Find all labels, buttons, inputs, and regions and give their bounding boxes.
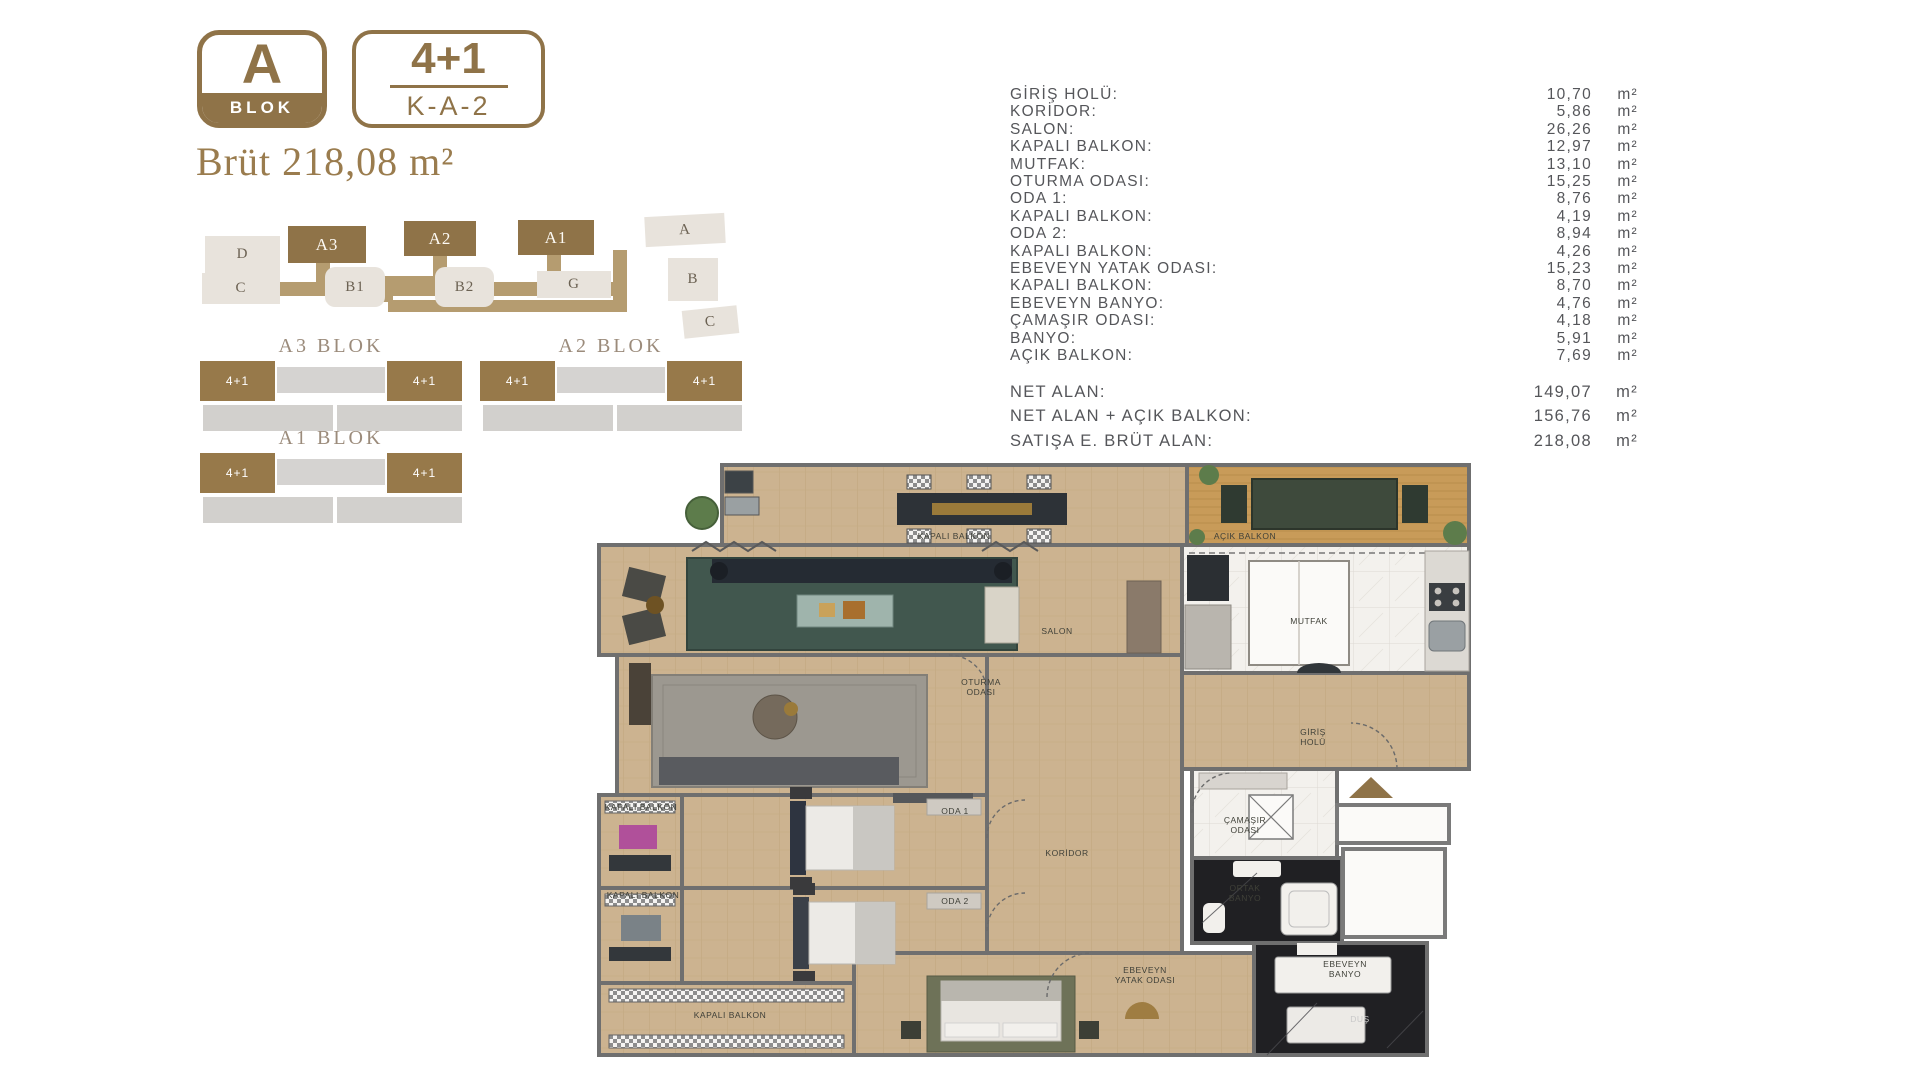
site-block-b: B [668,258,718,301]
room-area-value: 5,86 [1506,103,1592,120]
room-name: AÇIK BALKON: [1010,347,1506,364]
room-area-unit: m² [1592,330,1638,347]
area-row: ÇAMAŞIR ODASI: 4,18 m² [1010,312,1638,329]
site-block-a3: A3 [288,226,366,263]
brochure-page: A BLOK 4+1 K-A-2 Brüt 218,08 m² DCA3A2A1… [0,0,1920,1080]
room-name: MUTFAK: [1010,156,1506,173]
area-row: KAPALI BALKON: 8,70 m² [1010,277,1638,294]
core-bar [277,459,385,485]
lower-wing-right [337,497,462,523]
area-row: GİRİŞ HOLÜ: 10,70 m² [1010,86,1638,103]
area-row: EBEVEYN BANYO: 4,76 m² [1010,295,1638,312]
mini-block-plate: 4+1 4+1 [200,361,462,433]
site-block-c: C [202,273,280,304]
room-name: KAPALI BALKON: [1010,243,1506,260]
area-row: KAPALI BALKON: 4,19 m² [1010,208,1638,225]
site-block-a: A [644,213,725,247]
room-area-unit: m² [1592,103,1638,120]
mini-block-diagram: A2 BLOK 4+1 4+1 [480,335,742,433]
block-letter: A [202,35,322,93]
room-area-unit: m² [1592,190,1638,207]
site-block-g: G [537,271,611,298]
entrance-arrow-icon [1349,777,1393,798]
room-area-unit: m² [1592,429,1638,454]
room-area-unit: m² [1592,225,1638,242]
room-area-value: 8,94 [1506,225,1592,242]
floor-plan: KAPALI BALKONAÇIK BALKONSALONMUTFAKOTURM… [597,463,1477,1065]
block-badge: A BLOK [197,30,327,128]
unit-cell-right: 4+1 [387,453,462,493]
room-name: BANYO: [1010,330,1506,347]
room-name: OTURMA ODASI: [1010,173,1506,190]
room-area-unit: m² [1592,208,1638,225]
room-area-unit: m² [1592,277,1638,294]
area-row: MUTFAK: 13,10 m² [1010,156,1638,173]
room-area-value: 4,18 [1506,312,1592,329]
block-word: BLOK [202,93,322,123]
room-area-value: 13,10 [1506,156,1592,173]
room-area-unit: m² [1592,156,1638,173]
room-area-unit: m² [1592,121,1638,138]
room-name: ÇAMAŞIR ODASI: [1010,312,1506,329]
room-name: KAPALI BALKON: [1010,138,1506,155]
room-name: EBEVEYN YATAK ODASI: [1010,260,1506,277]
room-name: KAPALI BALKON: [1010,277,1506,294]
area-row: BANYO: 5,91 m² [1010,330,1638,347]
area-row: ODA 1: 8,76 m² [1010,190,1638,207]
area-row: AÇIK BALKON: 7,69 m² [1010,347,1638,364]
site-block-b1: B1 [325,267,385,307]
site-block-a2: A2 [404,221,476,256]
area-row: KAPALI BALKON: 4,26 m² [1010,243,1638,260]
room-area-value: 15,23 [1506,260,1592,277]
mini-block-diagram: A1 BLOK 4+1 4+1 [200,427,462,525]
area-table: GİRİŞ HOLÜ: 10,70 m² KORİDOR: 5,86 m² SA… [1010,86,1638,453]
area-row: ODA 2: 8,94 m² [1010,225,1638,242]
unit-code: K-A-2 [406,91,490,122]
room-area-unit: m² [1592,295,1638,312]
lower-wing-left [203,497,333,523]
area-row: KAPALI BALKON: 12,97 m² [1010,138,1638,155]
room-area-unit: m² [1592,312,1638,329]
mini-block-plate: 4+1 4+1 [480,361,742,433]
room-area-value: 26,26 [1506,121,1592,138]
room-area-unit: m² [1592,380,1638,405]
room-area-unit: m² [1592,404,1638,429]
unit-cell-right: 4+1 [387,361,462,401]
site-block-c: C [682,305,740,339]
room-area-value: 5,91 [1506,330,1592,347]
room-area-unit: m² [1592,347,1638,364]
room-name: SALON: [1010,121,1506,138]
room-area-value: 218,08 [1506,429,1592,454]
area-row: SATIŞA E. BRÜT ALAN: 218,08 m² [1010,429,1638,454]
room-area-value: 149,07 [1506,380,1592,405]
unit-cell-left: 4+1 [200,361,275,401]
badge-divider [390,85,508,88]
mini-block-diagram: A3 BLOK 4+1 4+1 [200,335,462,433]
unit-cell-right: 4+1 [667,361,742,401]
area-row: NET ALAN + AÇIK BALKON: 156,76 m² [1010,404,1638,429]
unit-type: 4+1 [411,37,486,81]
room-name: GİRİŞ HOLÜ: [1010,86,1506,103]
room-area-value: 8,70 [1506,277,1592,294]
kitchen-fixtures [1185,551,1469,673]
floor-plan-drawing [597,463,1477,1065]
sitting-room-furniture [629,663,973,803]
room-area-unit: m² [1592,173,1638,190]
site-block-a1: A1 [518,220,594,255]
room-area-value: 8,76 [1506,190,1592,207]
site-block-b2: B2 [435,267,494,307]
gross-area-text: Brüt 218,08 m² [196,138,454,185]
area-row: EBEVEYN YATAK ODASI: 15,23 m² [1010,260,1638,277]
mini-block-plate: 4+1 4+1 [200,453,462,525]
room-name: EBEVEYN BANYO: [1010,295,1506,312]
unit-cell-left: 4+1 [200,453,275,493]
area-totals: NET ALAN: 149,07 m² NET ALAN + AÇIK BALK… [1010,380,1638,454]
room-area-value: 4,76 [1506,295,1592,312]
room-area-value: 10,70 [1506,86,1592,103]
mini-block-title: A3 BLOK [200,335,462,357]
room-area-value: 15,25 [1506,173,1592,190]
room-area-value: 4,19 [1506,208,1592,225]
mini-block-title: A1 BLOK [200,427,462,449]
room-area-unit: m² [1592,138,1638,155]
area-row: KORİDOR: 5,86 m² [1010,103,1638,120]
area-row: NET ALAN: 149,07 m² [1010,380,1638,405]
area-row: SALON: 26,26 m² [1010,121,1638,138]
room-area-value: 156,76 [1506,404,1592,429]
room-name: ODA 2: [1010,225,1506,242]
room-name: SATIŞA E. BRÜT ALAN: [1010,429,1506,454]
lower-wing-left [483,405,613,431]
unit-cell-left: 4+1 [480,361,555,401]
room-name: KORİDOR: [1010,103,1506,120]
room-name: NET ALAN + AÇIK BALKON: [1010,404,1506,429]
unit-type-badge: 4+1 K-A-2 [352,30,545,128]
core-bar [277,367,385,393]
room-name: KAPALI BALKON: [1010,208,1506,225]
lower-wing-right [617,405,742,431]
site-block-d: D [205,236,280,273]
area-rows: GİRİŞ HOLÜ: 10,70 m² KORİDOR: 5,86 m² SA… [1010,86,1638,365]
core-bar [557,367,665,393]
room-area-value: 12,97 [1506,138,1592,155]
area-row: OTURMA ODASI: 15,25 m² [1010,173,1638,190]
room-area-unit: m² [1592,243,1638,260]
mini-block-title: A2 BLOK [480,335,742,357]
room-name: NET ALAN: [1010,380,1506,405]
room-area-value: 4,26 [1506,243,1592,260]
room-area-unit: m² [1592,86,1638,103]
room-name: ODA 1: [1010,190,1506,207]
room-area-value: 7,69 [1506,347,1592,364]
room-area-unit: m² [1592,260,1638,277]
